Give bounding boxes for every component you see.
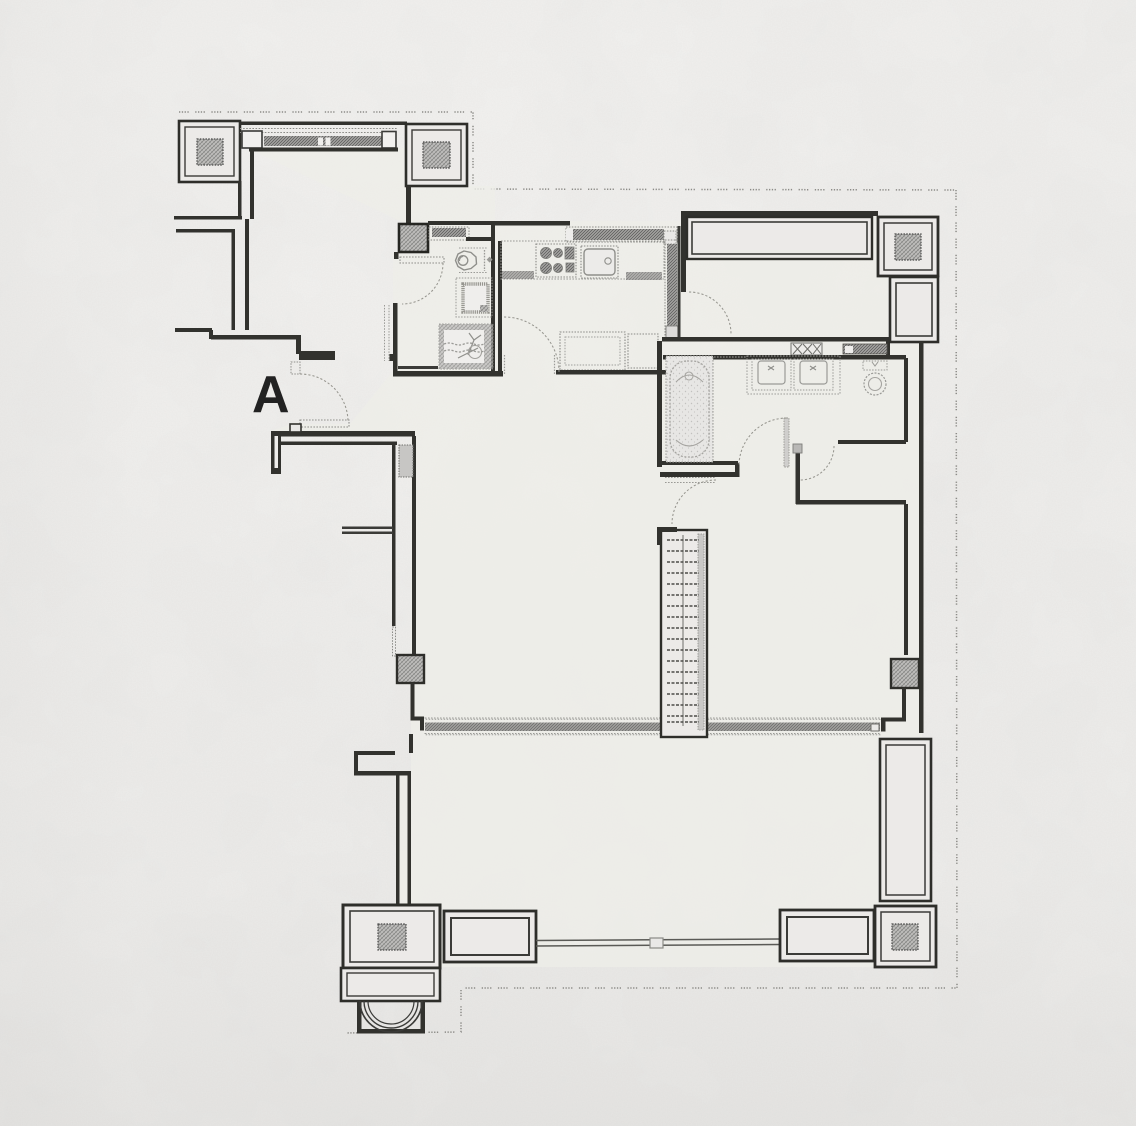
svg-text:A: A bbox=[252, 366, 290, 424]
